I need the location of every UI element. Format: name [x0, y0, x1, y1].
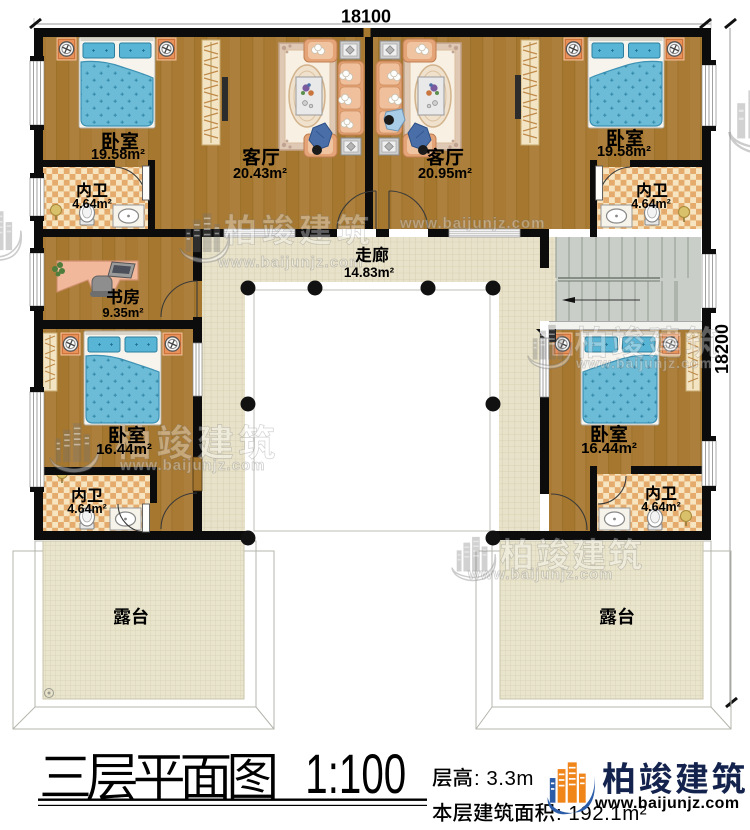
- svg-text:19.58m²: 19.58m²: [597, 144, 651, 160]
- svg-text:4.64m²: 4.64m²: [631, 197, 671, 211]
- svg-text:16.44m²: 16.44m²: [581, 440, 637, 457]
- svg-text:: 3.3m: : 3.3m: [474, 767, 534, 790]
- svg-text:www.baijunjz.com: www.baijunjz.com: [217, 254, 363, 271]
- svg-text:www.baijunjz.com: www.baijunjz.com: [467, 566, 613, 583]
- svg-text:20.43m²: 20.43m²: [233, 166, 287, 182]
- svg-text:14.83m²: 14.83m²: [344, 265, 395, 280]
- svg-text:4.64m²: 4.64m²: [72, 197, 112, 211]
- svg-text:4.64m²: 4.64m²: [67, 502, 107, 516]
- svg-text:www.baijunjz.com: www.baijunjz.com: [119, 457, 265, 474]
- svg-text:www.baijunjz.com: www.baijunjz.com: [575, 355, 713, 371]
- svg-text:19.58m²: 19.58m²: [91, 147, 145, 163]
- svg-text:18100: 18100: [341, 7, 391, 27]
- svg-text:www.baijunjz.com: www.baijunjz.com: [594, 795, 740, 812]
- svg-text:16.44m²: 16.44m²: [96, 441, 152, 458]
- svg-text:20.95m²: 20.95m²: [418, 166, 472, 182]
- svg-text:www.baijunjz.com: www.baijunjz.com: [399, 215, 545, 232]
- svg-text:9.35m²: 9.35m²: [102, 305, 144, 320]
- svg-text:4.64m²: 4.64m²: [641, 500, 681, 514]
- svg-text:1:100: 1:100: [305, 744, 406, 806]
